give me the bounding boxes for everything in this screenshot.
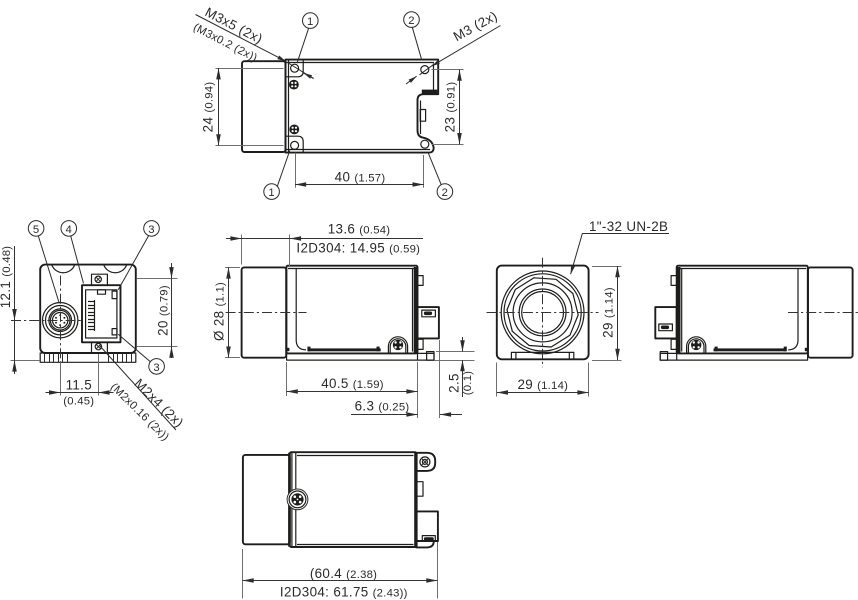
svg-text:40 (1.57): 40 (1.57): [335, 169, 386, 184]
svg-text:6.3 (0.25): 6.3 (0.25): [355, 398, 410, 413]
svg-text:(0.45): (0.45): [63, 395, 94, 407]
svg-text:11.5: 11.5: [66, 377, 92, 392]
svg-text:1: 1: [307, 16, 314, 28]
svg-text:12.1 (0.48): 12.1 (0.48): [0, 246, 13, 309]
svg-text:3: 3: [153, 362, 160, 374]
svg-text:3: 3: [148, 224, 155, 236]
svg-text:24 (0.94): 24 (0.94): [201, 82, 216, 133]
svg-text:2.5: 2.5: [447, 373, 462, 393]
svg-text:29 (1.14): 29 (1.14): [601, 287, 616, 338]
svg-text:Ø 28 (1.1): Ø 28 (1.1): [212, 282, 227, 341]
svg-text:(60.4 (2.38): (60.4 (2.38): [310, 566, 377, 581]
svg-text:2: 2: [408, 15, 415, 27]
svg-text:1: 1: [268, 187, 275, 199]
svg-text:I2D304: 14.95 (0.59): I2D304: 14.95 (0.59): [296, 240, 420, 255]
svg-text:I2D304: 61.75 (2.43)): I2D304: 61.75 (2.43)): [280, 584, 408, 599]
svg-text:4: 4: [66, 224, 73, 236]
svg-text:1"-32 UN-2B: 1"-32 UN-2B: [589, 219, 668, 234]
svg-text:29 (1.14): 29 (1.14): [517, 377, 568, 392]
svg-text:5: 5: [33, 224, 40, 236]
svg-text:(0.1): (0.1): [462, 371, 474, 395]
svg-text:2: 2: [442, 187, 449, 199]
svg-text:20 (0.79): 20 (0.79): [156, 285, 171, 336]
svg-text:23 (0.91): 23 (0.91): [443, 82, 458, 133]
svg-text:13.6 (0.54): 13.6 (0.54): [328, 221, 391, 236]
svg-text:40.5 (1.59): 40.5 (1.59): [321, 376, 384, 391]
